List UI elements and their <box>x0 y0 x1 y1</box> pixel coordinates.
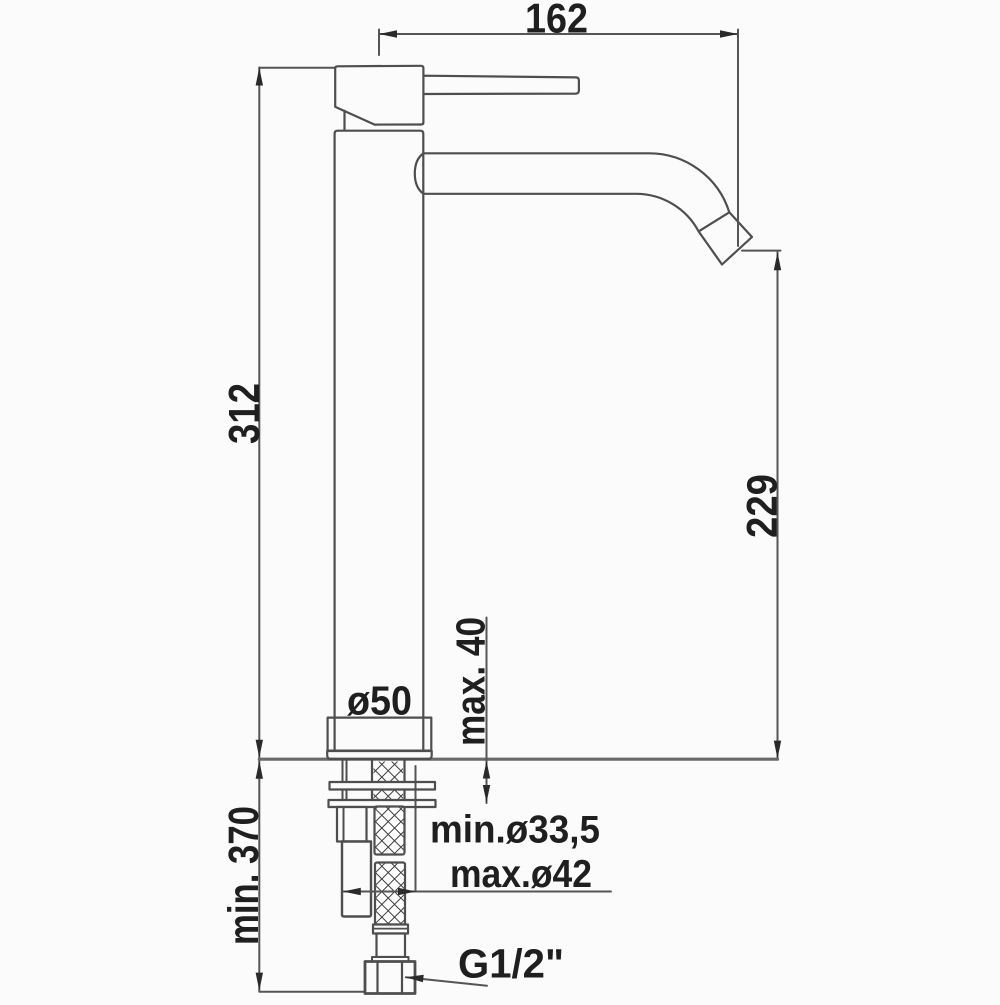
svg-text:min. 370: min. 370 <box>220 806 268 945</box>
svg-text:min.ø33,5: min.ø33,5 <box>430 809 600 852</box>
svg-text:max.ø42: max.ø42 <box>450 853 592 896</box>
svg-text:max. 40: max. 40 <box>448 617 494 746</box>
svg-text:162: 162 <box>525 0 588 42</box>
svg-text:312: 312 <box>220 383 269 444</box>
svg-text:G1/2": G1/2" <box>458 941 564 987</box>
svg-text:ø50: ø50 <box>347 678 412 724</box>
svg-text:229: 229 <box>739 474 787 538</box>
